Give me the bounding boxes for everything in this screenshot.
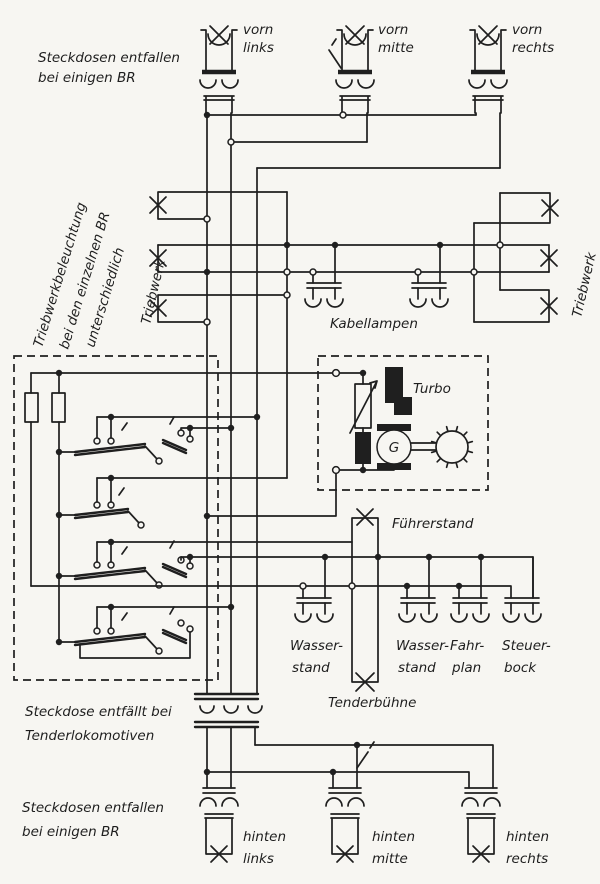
switch-icon [75, 613, 162, 654]
front-lamp-right [469, 26, 507, 168]
rear-left-label1: hinten [243, 829, 286, 845]
fuse-icon [25, 393, 38, 422]
triebwerk-lamps-right [474, 193, 558, 322]
front-lamp-left [200, 26, 238, 142]
resistor-icon [355, 432, 371, 464]
generator-letter: G [389, 440, 399, 456]
fuse-icon [52, 393, 65, 422]
steuerbock-label2: bock [504, 660, 537, 676]
wasserstand1-label1: Wasser- [290, 638, 343, 654]
lamp-socket-icon [336, 26, 374, 113]
locomotive-lighting-schematic: Steckdosen entfallen bei einigen BR vorn… [0, 0, 600, 884]
socket-icon [503, 598, 541, 622]
triebwerk-lamps-left [150, 192, 549, 322]
bottom-note-line2: bei einigen BR [22, 824, 120, 840]
note-top-left: Steckdosen entfallen bei einigen BR [38, 50, 180, 86]
rear-lamp-left [200, 788, 238, 862]
lamp-socket-icon [326, 788, 364, 862]
fahrplan-label1: Fahr- [450, 638, 484, 654]
tender-note-line1: Steckdose entfällt bei [25, 704, 172, 720]
socket-icon [451, 598, 489, 622]
rear-lamp-buses [207, 745, 493, 788]
cab-buses [31, 557, 533, 598]
kabellampen-sockets [305, 245, 448, 307]
cab-sockets [295, 557, 541, 622]
switch-icon [75, 423, 162, 464]
socket-icon [305, 283, 343, 307]
switch-icon [75, 547, 162, 588]
socket-icon [399, 598, 437, 622]
turbo-generator-unit: G [31, 356, 488, 516]
note-engine-lighting: Triebwerkbeleuchtung bei den einzelnen B… [31, 200, 129, 351]
rear-left-label2: links [243, 851, 274, 867]
pole-shoe-icon [385, 367, 412, 415]
adjustable-resistor-icon [355, 384, 371, 428]
fuehrerstand-label: Führerstand [392, 516, 474, 532]
lamp-icon [357, 509, 373, 525]
rear-mid-label2: mitte [372, 851, 408, 867]
wasserstand2-label1: Wasser- [396, 638, 449, 654]
triebwerk-right-label: Triebwerk [569, 250, 600, 319]
knife-switch-1 [75, 417, 257, 464]
front-left-label2: links [243, 40, 274, 56]
socket-icon [410, 283, 448, 307]
front-mid-label2: mitte [378, 40, 414, 56]
knife-switch-3 [75, 541, 352, 588]
cab-socket-labels: Wasser- stand Wasser- stand Fahr- plan S… [290, 638, 551, 676]
front-right-label2: rechts [512, 40, 554, 56]
front-right-label1: vorn [512, 22, 542, 38]
turbo-label: Turbo [413, 381, 451, 397]
knife-switch-2 [75, 478, 287, 528]
wasserstand2-label2: stand [398, 660, 436, 676]
lamp-socket-icon [469, 26, 507, 113]
front-lamp-middle [329, 26, 374, 142]
front-lamp-buses [207, 115, 500, 168]
rear-lamp-middle [326, 742, 374, 862]
fuehrerstand-tenderbuehne [352, 509, 378, 691]
socket-icon [295, 598, 333, 622]
tenderbuehne-label: Tenderbühne [328, 695, 416, 711]
front-left-label1: vorn [243, 22, 273, 38]
fahrplan-label2: plan [451, 660, 481, 676]
rear-right-label2: rechts [506, 851, 548, 867]
rear-lamp-labels: hinten links hinten mitte hinten rechts [243, 829, 549, 867]
tender-note-line2: Tenderlokomotiven [25, 728, 154, 744]
lamp-socket-icon [200, 26, 238, 113]
bottom-note-line1: Steckdosen entfallen [22, 800, 164, 816]
note-tender: Steckdose entfällt bei Tenderlokomotiven [25, 704, 172, 744]
wasserstand1-label2: stand [292, 660, 330, 676]
rear-mid-label1: hinten [372, 829, 415, 845]
lamp-socket-icon [462, 788, 500, 862]
lamp-socket-icon [200, 788, 238, 862]
rear-right-label1: hinten [506, 829, 549, 845]
front-lamp-labels: vorn links vorn mitte vorn rechts [243, 22, 554, 56]
note-bottom-left: Steckdosen entfallen bei einigen BR [22, 800, 164, 840]
lamp-switch-icon [329, 39, 341, 68]
note-top-line2: bei einigen BR [38, 70, 136, 86]
shaft-icon [411, 443, 436, 450]
note-top-line1: Steckdosen entfallen [38, 50, 180, 66]
rear-lamp-right [462, 788, 500, 862]
kabellampen-label: Kabellampen [330, 316, 418, 332]
switchboard-box [14, 356, 352, 680]
wiring-diagram-page: Steckdosen entfallen bei einigen BR vorn… [0, 0, 600, 884]
front-mid-label1: vorn [378, 22, 408, 38]
steuerbock-label1: Steuer- [502, 638, 551, 654]
